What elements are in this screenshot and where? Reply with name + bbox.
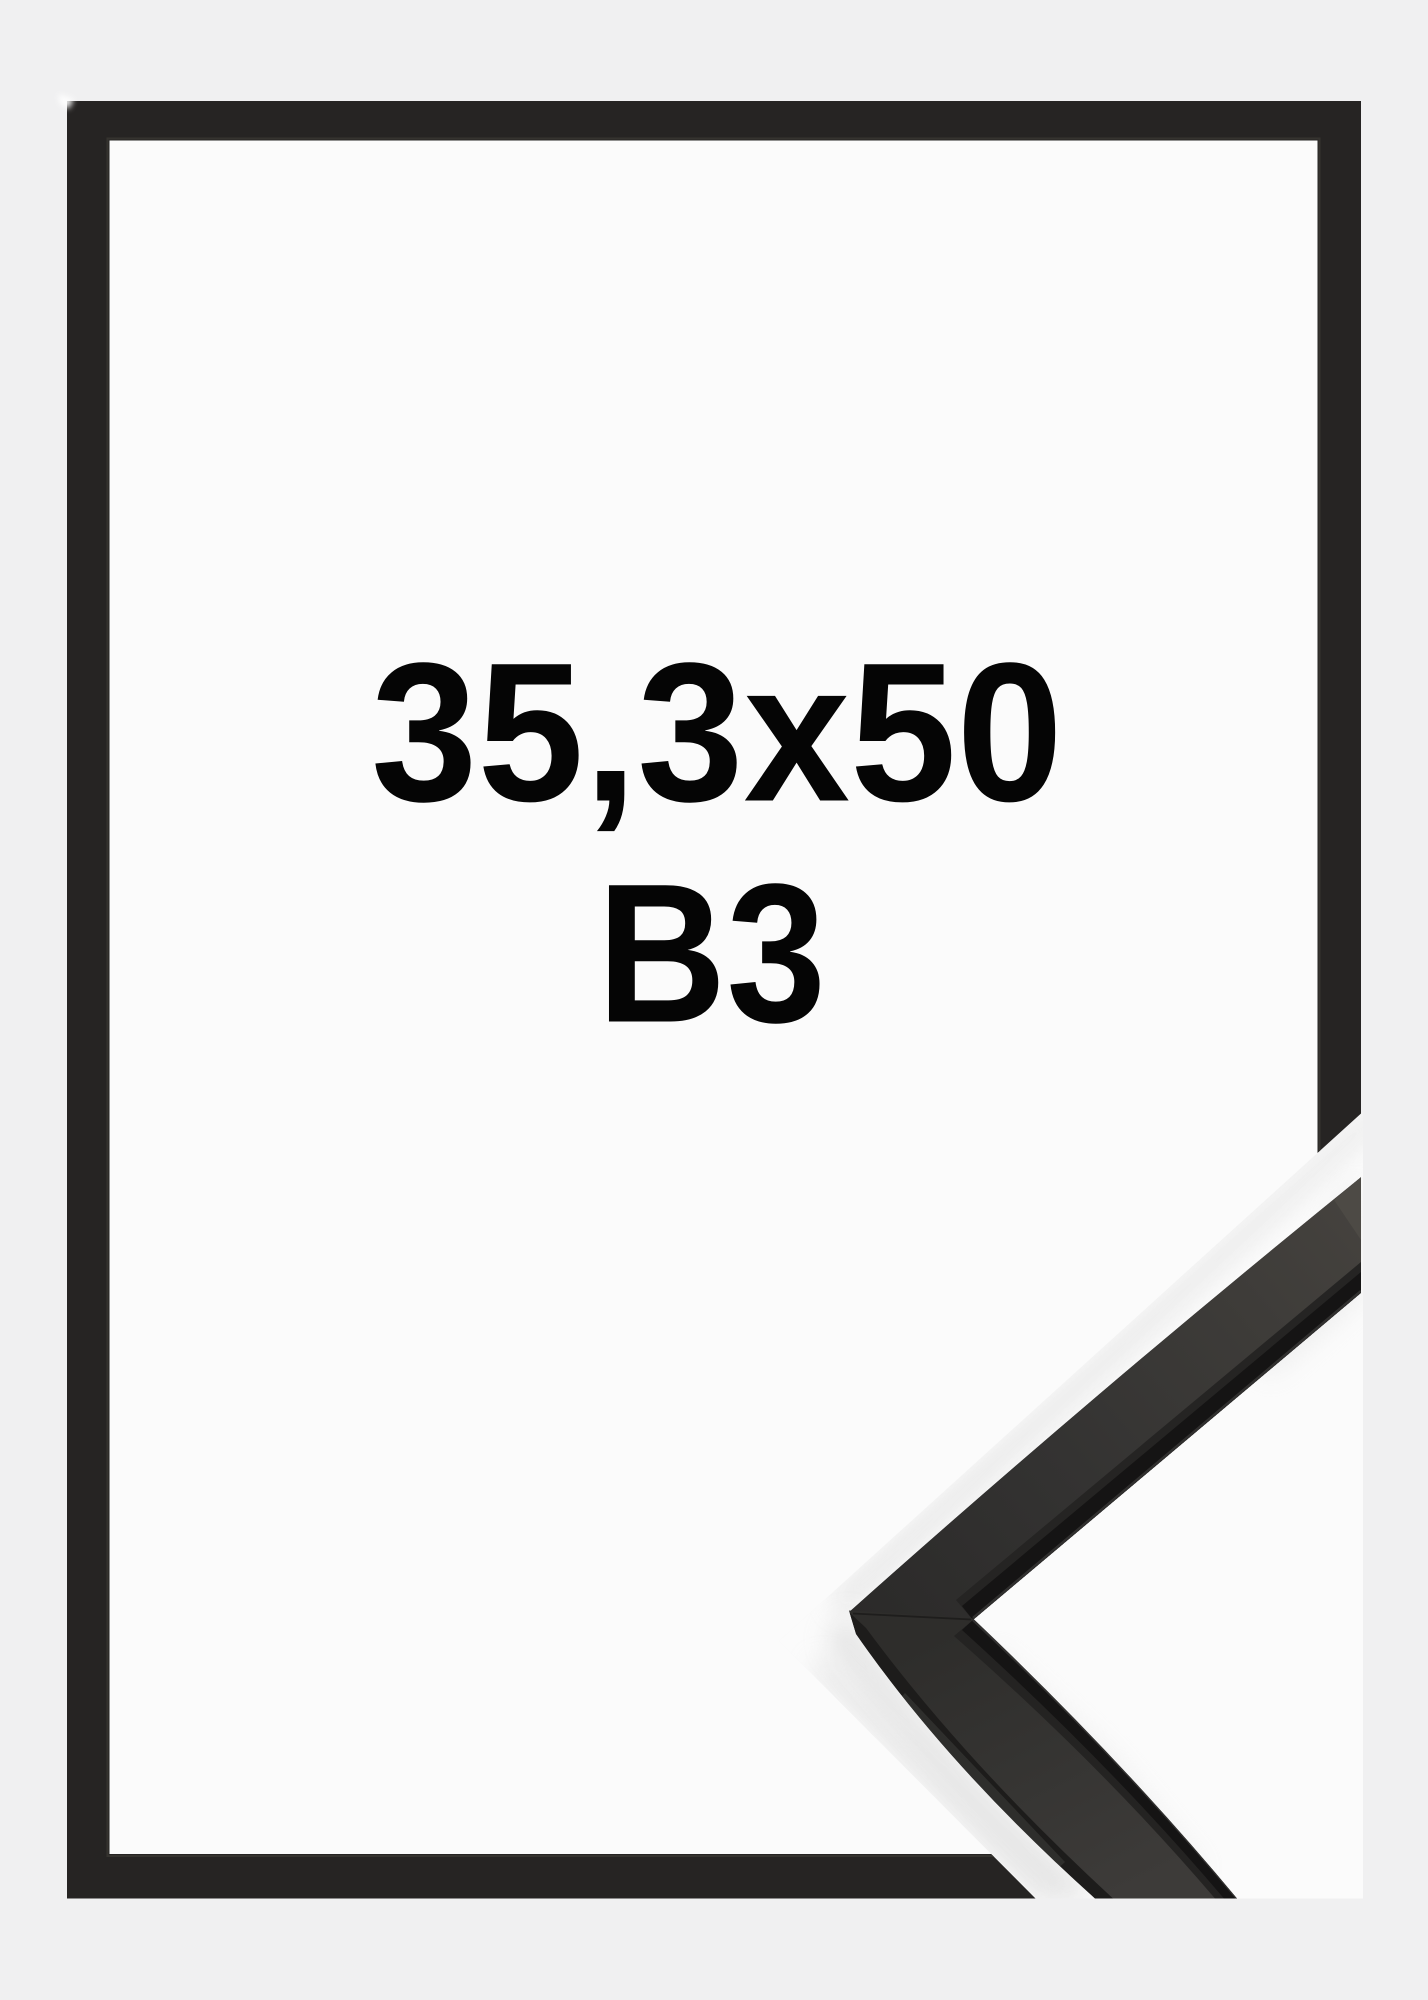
svg-text:35,3x50: 35,3x50 [371,622,1063,843]
svg-text:B3: B3 [597,843,826,1064]
